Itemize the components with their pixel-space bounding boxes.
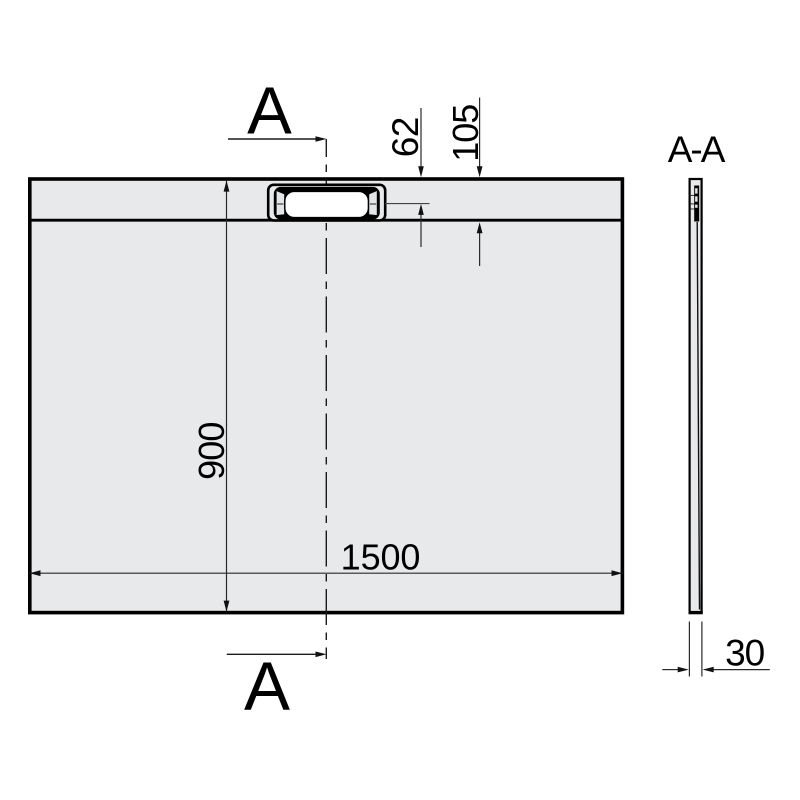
svg-text:1500: 1500 <box>341 536 421 577</box>
svg-text:A: A <box>244 648 290 725</box>
svg-text:A: A <box>247 74 292 149</box>
svg-text:62: 62 <box>385 117 426 157</box>
svg-text:30: 30 <box>725 633 765 674</box>
svg-text:A-A: A-A <box>668 129 726 170</box>
svg-text:105: 105 <box>445 105 486 162</box>
svg-text:900: 900 <box>191 423 232 480</box>
